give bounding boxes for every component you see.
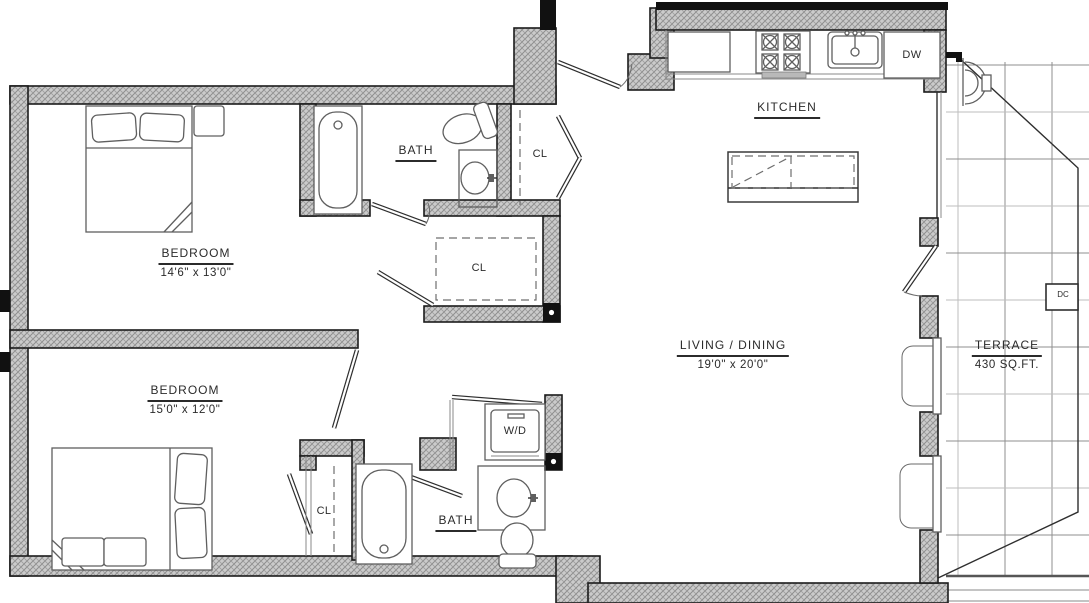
bedroom2-door-swing xyxy=(334,350,357,428)
kitchen-island xyxy=(728,152,858,202)
terrace-grid xyxy=(946,62,1089,576)
terrace-area: 430 SQ.FT. xyxy=(972,358,1042,373)
bath-lower-name: BATH xyxy=(435,513,476,532)
washer-dryer-icon xyxy=(450,400,545,470)
toilet-upper-icon xyxy=(438,101,499,153)
bath-lower-label: BATH xyxy=(435,510,476,532)
terrace-name: TERRACE xyxy=(972,338,1042,357)
bedroom-1-name: BEDROOM xyxy=(158,246,233,265)
bed-lower-icon xyxy=(52,448,212,570)
terrace-window-2 xyxy=(900,456,941,532)
floor-plan-drawing xyxy=(0,0,1089,603)
sink-lower-icon xyxy=(478,466,545,530)
kitchen-name: KITCHEN xyxy=(754,100,820,119)
stove-icon xyxy=(756,31,810,78)
bedroom-1-dims: 14'6" x 13'0" xyxy=(158,266,233,281)
closet-upper-label: CL xyxy=(533,147,548,161)
living-dining-label: LIVING / DINING 19'0" x 20'0" xyxy=(677,335,789,373)
terrace-edge xyxy=(938,57,1089,601)
entry-door-swing xyxy=(558,62,632,87)
bedroom-2-label: BEDROOM 15'0" x 12'0" xyxy=(147,380,222,418)
bed-upper-icon xyxy=(86,106,224,232)
closet-upper-door xyxy=(558,116,580,198)
dc-unit-label: DC xyxy=(1057,290,1069,300)
closet-middle-label: CL xyxy=(472,261,487,275)
living-dining-dims: 19'0" x 20'0" xyxy=(677,358,789,373)
closet-lower-door-swing xyxy=(289,474,311,534)
sink-upper-icon xyxy=(459,150,497,207)
bath-upper-label: BATH xyxy=(395,140,436,162)
bedroom-2-name: BEDROOM xyxy=(147,383,222,402)
living-terrace-wall xyxy=(900,92,941,583)
bedroom-1-label: BEDROOM 14'6" x 13'0" xyxy=(158,243,233,281)
terrace-label: TERRACE 430 SQ.FT. xyxy=(972,335,1042,373)
kitchen-label: KITCHEN xyxy=(754,97,820,119)
closet-lower-label: CL xyxy=(317,504,332,518)
washer-dryer-label: W/D xyxy=(504,424,527,438)
bath-upper-door-swing xyxy=(372,203,430,224)
kitchen-sink-icon xyxy=(828,31,882,68)
toilet-lower-icon xyxy=(499,523,536,568)
closet-middle-door-swing xyxy=(378,272,433,305)
living-dining-name: LIVING / DINING xyxy=(677,338,789,357)
bathtub-upper-icon xyxy=(314,106,362,214)
fridge-icon xyxy=(668,32,730,72)
washer-dryer-door xyxy=(452,397,542,404)
bathtub-lower-icon xyxy=(356,464,412,564)
dishwasher-label: DW xyxy=(902,48,921,62)
floor-plan: BEDROOM 14'6" x 13'0" BEDROOM 15'0" x 12… xyxy=(0,0,1089,603)
terrace-window-1 xyxy=(902,338,941,414)
bedroom-2-dims: 15'0" x 12'0" xyxy=(147,403,222,418)
bath-upper-name: BATH xyxy=(395,143,436,162)
terrace-door-swing xyxy=(904,246,936,296)
